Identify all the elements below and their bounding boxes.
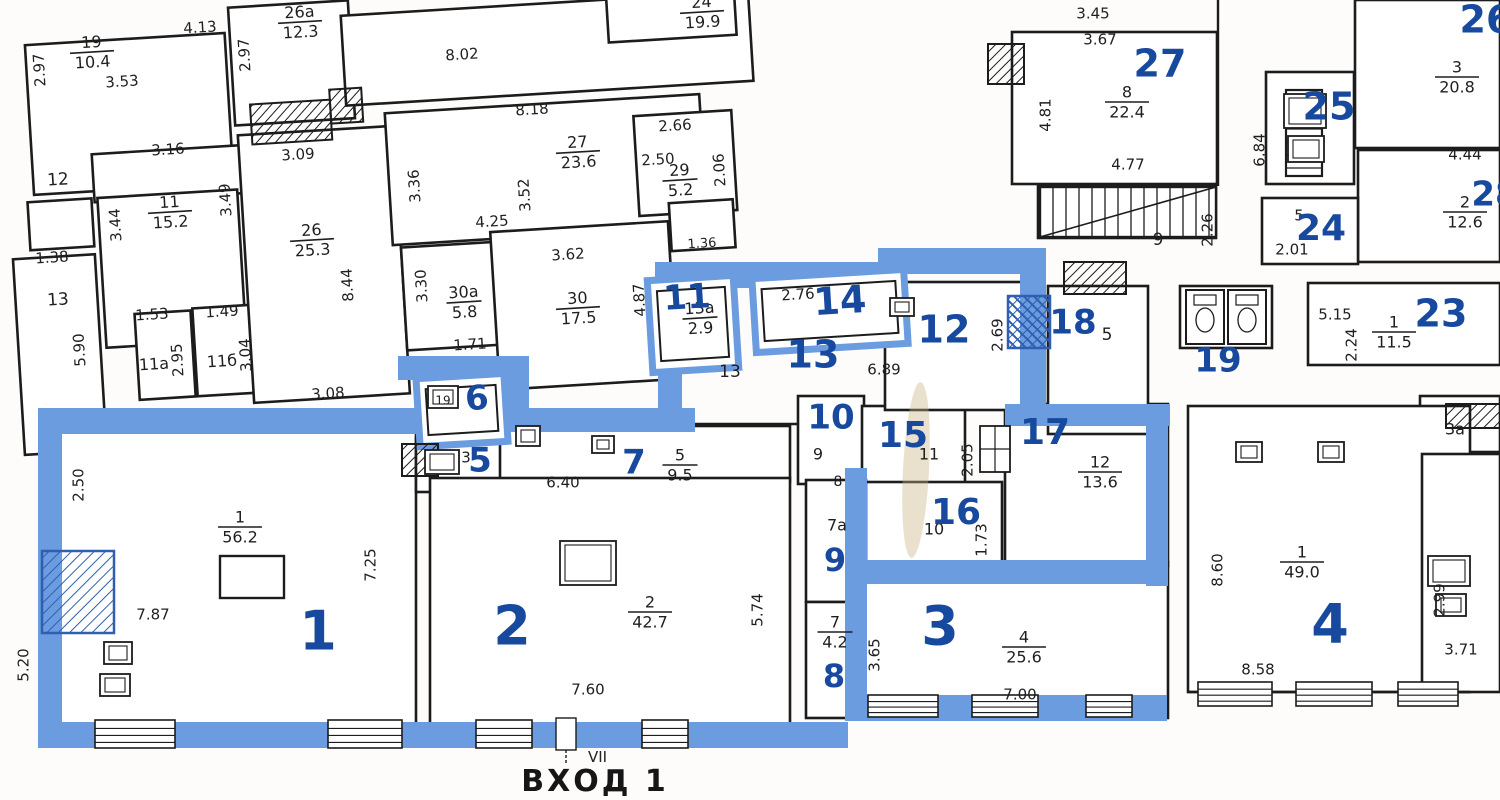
room-area-numerator: 1 <box>235 508 245 527</box>
room-area-numerator: 29 <box>669 160 690 180</box>
unit-room-number-1: 1 <box>299 600 337 663</box>
dimension-label: 2.66 <box>658 115 692 135</box>
dimension-label: 6.89 <box>867 361 900 379</box>
dimension-label: 8.58 <box>1241 661 1274 679</box>
dimension-label: 2.26 <box>1199 213 1217 246</box>
dimension-label: 8.02 <box>445 44 479 64</box>
dimension-label: 11б <box>206 351 237 372</box>
sink-fixture <box>890 298 914 316</box>
dimension-label: 4.77 <box>1111 156 1144 174</box>
dimension-label: 6.84 <box>1251 133 1269 166</box>
room-area-numerator: 5 <box>675 446 685 465</box>
sink-fixture <box>104 642 132 664</box>
dimension-label: 3.71 <box>1444 641 1477 659</box>
dimension-label: 2.99 <box>1431 583 1449 616</box>
room-area-denominator: 25.3 <box>294 239 331 260</box>
sink-fixture <box>1318 442 1344 462</box>
dimension-label: 3.08 <box>311 383 345 403</box>
fixture-outline <box>592 436 614 453</box>
room-area-denominator: 5.8 <box>451 302 478 323</box>
room-area-numerator: 1 <box>1297 543 1307 562</box>
dimension-label: 6.40 <box>546 474 579 492</box>
dimension-label: 4.13 <box>183 17 217 37</box>
unit-room-number-10: 10 <box>807 398 854 438</box>
window-frame <box>95 720 175 748</box>
dimension-label: 3.04 <box>235 338 255 372</box>
dimension-label: 12 <box>47 169 70 190</box>
blue-crosshatch-block <box>1008 296 1050 348</box>
room-area-denominator: 56.2 <box>222 528 258 547</box>
fixture-outline <box>1318 442 1344 462</box>
dimension-label: 5.74 <box>749 593 767 626</box>
window-frame <box>1296 682 1372 706</box>
dimension-label: 1.53 <box>135 304 169 324</box>
room-wall <box>430 478 790 742</box>
unit-highlight-band <box>845 468 867 720</box>
window <box>1086 695 1132 717</box>
room-area-numerator: 19 <box>81 32 102 52</box>
entrance-label: ВХОД 1 <box>470 764 720 799</box>
dimension-label: 3.49 <box>215 183 235 217</box>
dimension-label: 13 <box>47 289 70 310</box>
window <box>1198 682 1272 706</box>
staircase <box>1040 187 1216 237</box>
room-area-denominator: 49.0 <box>1284 563 1320 582</box>
floorplan-canvas: 2.973.534.132.973.163.09123.443.491.3813… <box>0 0 1500 800</box>
room-area-numerator: 3 <box>1452 58 1462 77</box>
dimension-label: 3.09 <box>281 144 315 164</box>
stair-hatch <box>329 88 363 124</box>
window <box>476 720 532 748</box>
unit-room-number-7: 7 <box>622 443 646 483</box>
unit-room-number-14: 14 <box>812 277 867 324</box>
dimension-label: 9 <box>1153 230 1164 250</box>
wc-outline <box>1186 290 1224 344</box>
room-area-numerator: 4 <box>1019 628 1029 647</box>
unit-room-number-2: 2 <box>493 595 531 658</box>
dimension-label: 4.87 <box>629 283 649 317</box>
entrance-door-gap <box>556 718 576 750</box>
room-area-denominator: 17.5 <box>560 307 597 328</box>
dimension-label: 8.18 <box>515 99 549 119</box>
wc-stall <box>1186 290 1224 344</box>
unit-room-number-3: 3 <box>921 595 959 658</box>
unit-room-number-16: 16 <box>931 492 981 533</box>
dimension-label: 1.49 <box>205 301 239 321</box>
dimension-label: 3.36 <box>404 169 424 203</box>
room-area-numerator: 1 <box>1389 313 1399 332</box>
room-area-denominator: 25.6 <box>1006 648 1042 667</box>
room-area-denominator: 22.4 <box>1109 103 1145 122</box>
room-area-numerator: 26а <box>284 2 315 23</box>
room-area-denominator: 42.7 <box>632 613 668 632</box>
window-frame <box>328 720 402 748</box>
unit-room-number-13: 13 <box>787 333 840 377</box>
stair-hatch <box>250 100 332 145</box>
unit-room-number-5: 5 <box>468 441 492 481</box>
dimension-label: 7.00 <box>1003 686 1036 704</box>
fixture-outline <box>890 298 914 316</box>
blue-room-group <box>416 373 508 446</box>
shaft-fixture <box>980 426 1010 472</box>
dimension-label: 4.44 <box>1448 146 1481 164</box>
fixture-outline <box>104 642 132 664</box>
neighbor-room-number-23: 23 <box>1415 292 1468 336</box>
room-area-numerator: 12 <box>1090 453 1110 472</box>
sink-fixture <box>1236 442 1262 462</box>
unit-room-number-4: 4 <box>1311 593 1349 656</box>
dimension-label: 5.20 <box>15 648 33 681</box>
window-frame <box>1198 682 1272 706</box>
room-area-denominator: 5.2 <box>667 180 694 201</box>
neighbor-room-number-28: 28 <box>1471 175 1500 215</box>
unit-room-number-17: 17 <box>1020 412 1070 453</box>
neighbor-room-number-26: 26 <box>1460 0 1500 42</box>
window-frame <box>642 720 688 748</box>
dimension-label: 3а <box>1445 420 1465 439</box>
dimension-label: 5.90 <box>69 333 89 367</box>
blue-hatch-block <box>42 551 114 633</box>
room-area-numerator: 11 <box>159 192 180 212</box>
fixture-outline <box>560 541 616 585</box>
room-area-numerator: 8 <box>1122 83 1132 102</box>
dimension-label: 3.16 <box>151 139 185 159</box>
dimension-label: 4.81 <box>1037 98 1055 131</box>
room-area-denominator: 4.2 <box>822 633 847 652</box>
room-area-denominator: 12.6 <box>1447 213 1483 232</box>
room-area-denominator: 19.9 <box>684 11 721 32</box>
room-area-denominator: 10.4 <box>74 51 111 72</box>
dimension-label: 1.71 <box>453 334 487 354</box>
room-wall <box>28 198 95 250</box>
room-area-denominator: 13.6 <box>1082 473 1118 492</box>
window <box>328 720 402 748</box>
dimension-label: 7а <box>827 516 847 535</box>
window-frame <box>1086 695 1132 717</box>
dimension-label: 3.67 <box>1083 31 1116 49</box>
unit-highlight-band <box>848 560 1168 584</box>
window <box>95 720 175 748</box>
window <box>1296 682 1372 706</box>
dimension-label: 2.97 <box>234 38 254 72</box>
dimension-label: 1.38 <box>35 247 69 267</box>
neighbor-room-number-25: 25 <box>1303 85 1356 129</box>
dimension-label: 2.95 <box>167 343 187 377</box>
dimension-label: 5.15 <box>1318 306 1351 324</box>
unit-room-number-11: 11 <box>662 276 712 319</box>
dimension-label: 2.05 <box>959 443 977 476</box>
dimension-label: 11а <box>138 354 169 375</box>
unit-room-number-12: 12 <box>918 308 971 352</box>
sink-fixture <box>1428 556 1470 586</box>
window-frame <box>868 695 938 717</box>
dimension-label: 3.65 <box>866 638 884 671</box>
unit-room-number-18: 18 <box>1049 303 1096 343</box>
fixture-outline <box>516 426 540 446</box>
wc-stall <box>1228 290 1266 344</box>
dimension-label: 3.52 <box>514 178 534 212</box>
unit-highlight-band <box>38 408 420 434</box>
room-wall <box>1308 283 1500 365</box>
dimension-label: 2.69 <box>989 318 1007 351</box>
room-area-numerator: 2 <box>645 593 655 612</box>
dimension-label: 5 <box>1102 325 1113 345</box>
window <box>1398 682 1458 706</box>
dimension-label: 7.60 <box>571 681 604 699</box>
window <box>642 720 688 748</box>
unit-room-number-15: 15 <box>878 415 928 456</box>
dimension-label: 13 <box>719 362 741 382</box>
stove-fixture <box>560 541 616 585</box>
dimension-label: 3.62 <box>551 244 585 264</box>
room-wall <box>238 126 410 403</box>
room-area-numerator: 24 <box>691 0 712 12</box>
room-area-numerator: 27 <box>567 132 588 152</box>
sink-fixture <box>100 674 130 696</box>
dimension-label: 8 <box>834 474 843 490</box>
unit-room-number-19: 19 <box>1194 341 1241 381</box>
neighbor-room-number-27: 27 <box>1134 42 1187 86</box>
sink-fixture <box>425 450 459 474</box>
dimension-label: 2.50 <box>70 468 88 501</box>
dimension-label: 2.97 <box>29 53 49 87</box>
room-area-denominator: 2.9 <box>687 318 714 339</box>
dimension-label: 8.60 <box>1209 553 1227 586</box>
room-area-denominator: 9.5 <box>667 466 692 485</box>
sink-fixture <box>1288 136 1324 162</box>
room-area-denominator: 15.2 <box>152 211 189 232</box>
room-area-numerator: 30 <box>567 288 588 308</box>
window-frame <box>1398 682 1458 706</box>
window <box>868 695 938 717</box>
dimension-label: 3.45 <box>1076 5 1109 23</box>
wc-outline <box>1228 290 1266 344</box>
neighbor-room-number-24: 24 <box>1296 208 1346 249</box>
room-area-denominator: 20.8 <box>1439 78 1475 97</box>
dimension-label: 9 <box>813 445 823 464</box>
dimension-label: 1.36 <box>687 236 717 253</box>
room-area-numerator: 7 <box>830 613 840 632</box>
sink-fixture <box>516 426 540 446</box>
room-area-numerator: 2 <box>1460 193 1470 212</box>
dimension-label: 7.25 <box>362 548 380 581</box>
unit-room-number-8: 8 <box>823 657 845 695</box>
stair-hatch <box>988 44 1024 84</box>
wall-opening <box>220 556 284 598</box>
room-area-denominator: 11.5 <box>1376 333 1412 352</box>
unit-room-number-6: 6 <box>464 378 490 419</box>
room-area-denominator: 12.3 <box>282 21 319 42</box>
stair-hatch <box>1064 262 1126 294</box>
window-frame <box>476 720 532 748</box>
dimension-label: 7.87 <box>136 606 169 624</box>
sink-fixture <box>592 436 614 453</box>
room-area-denominator: 23.6 <box>560 151 597 172</box>
floorplan-svg: 2.973.534.132.973.163.09123.443.491.3813… <box>0 0 1500 800</box>
dimension-label: 3.44 <box>105 208 125 242</box>
dimension-label: 3.30 <box>411 269 431 303</box>
dimension-label: 2.06 <box>709 153 729 187</box>
unit-highlight-band <box>1146 404 1168 586</box>
dimension-label: 19 <box>435 394 450 408</box>
room-area-numerator: 30а <box>448 282 479 303</box>
dimension-label: 2.24 <box>1343 328 1361 361</box>
room-area-numerator: 26 <box>301 220 322 240</box>
dimension-label: 4.25 <box>475 211 509 231</box>
fixture-outline <box>1236 442 1262 462</box>
unit-room-number-9: 9 <box>824 541 846 579</box>
dimension-label: 8.44 <box>337 268 357 302</box>
dimension-label: 3.53 <box>105 71 139 91</box>
dimension-label: 2.76 <box>781 284 815 304</box>
